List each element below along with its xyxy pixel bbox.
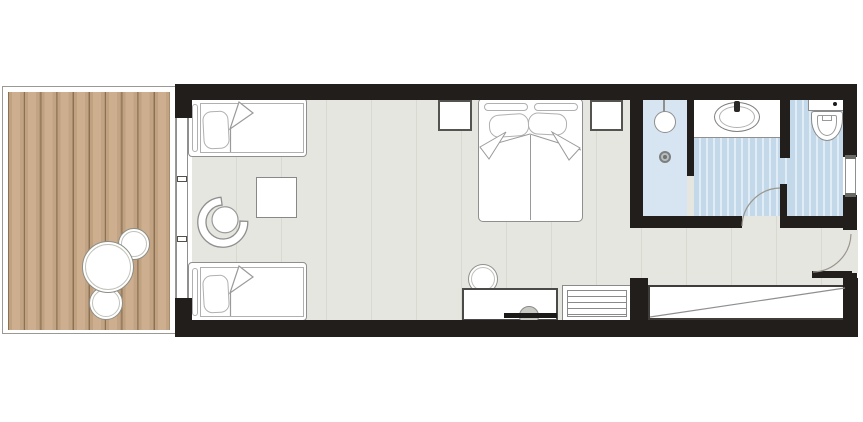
side-table bbox=[256, 177, 297, 218]
left-wall-upper bbox=[175, 84, 192, 118]
right-wall-top bbox=[843, 84, 857, 157]
tv-screen bbox=[504, 313, 557, 318]
single-bed-bottom-pillow bbox=[202, 274, 230, 313]
single-bed-bottom-headboard bbox=[192, 268, 198, 316]
luggage-rack-slats bbox=[567, 290, 627, 317]
patio-sliding-door bbox=[176, 118, 188, 298]
toilet-partition-wall bbox=[780, 98, 790, 158]
wardrobe-niche-stub-right bbox=[848, 278, 858, 320]
deck-table bbox=[82, 241, 134, 293]
double-bed-pillow-left bbox=[488, 113, 530, 139]
toilet-window bbox=[845, 155, 856, 197]
wardrobe-niche-stub-left bbox=[630, 278, 648, 320]
toilet-tank bbox=[808, 99, 846, 111]
toilet-button bbox=[833, 102, 837, 106]
toilet-bowl-mark bbox=[822, 115, 832, 121]
double-bed-headboard-right bbox=[534, 103, 578, 111]
bottom-wall bbox=[175, 320, 858, 337]
single-bed-top-headboard bbox=[192, 104, 198, 152]
shower-drain-dot bbox=[663, 155, 667, 159]
entry-door-leaf bbox=[812, 271, 852, 278]
top-wall bbox=[175, 84, 857, 100]
floor-plan bbox=[0, 0, 863, 422]
nightstand-right bbox=[590, 100, 623, 131]
shower-head bbox=[654, 111, 676, 133]
wardrobe bbox=[648, 285, 848, 320]
entry-door-opening-floor bbox=[843, 230, 858, 273]
patio-door-mullion-2 bbox=[177, 236, 187, 242]
double-bed-pillow-right bbox=[527, 112, 567, 136]
toilet-window-cap-bottom bbox=[845, 193, 856, 197]
deck-planks bbox=[8, 92, 170, 330]
single-bed-top-pillow bbox=[202, 110, 230, 149]
shower-partition-wall bbox=[687, 98, 694, 176]
toilet-window-cap-top bbox=[845, 155, 856, 159]
patio-door-mullion-1 bbox=[177, 176, 187, 182]
right-wall-mid bbox=[843, 195, 857, 230]
bathroom-bottom-wall-left bbox=[630, 216, 742, 228]
double-bed-headboard-left bbox=[484, 103, 528, 111]
bathroom-left-wall bbox=[630, 84, 643, 228]
nightstand-left bbox=[438, 100, 472, 131]
sink-faucet bbox=[734, 101, 740, 112]
bathroom-door-leaf bbox=[780, 184, 787, 228]
bathroom-bottom-wall-right bbox=[781, 216, 843, 228]
